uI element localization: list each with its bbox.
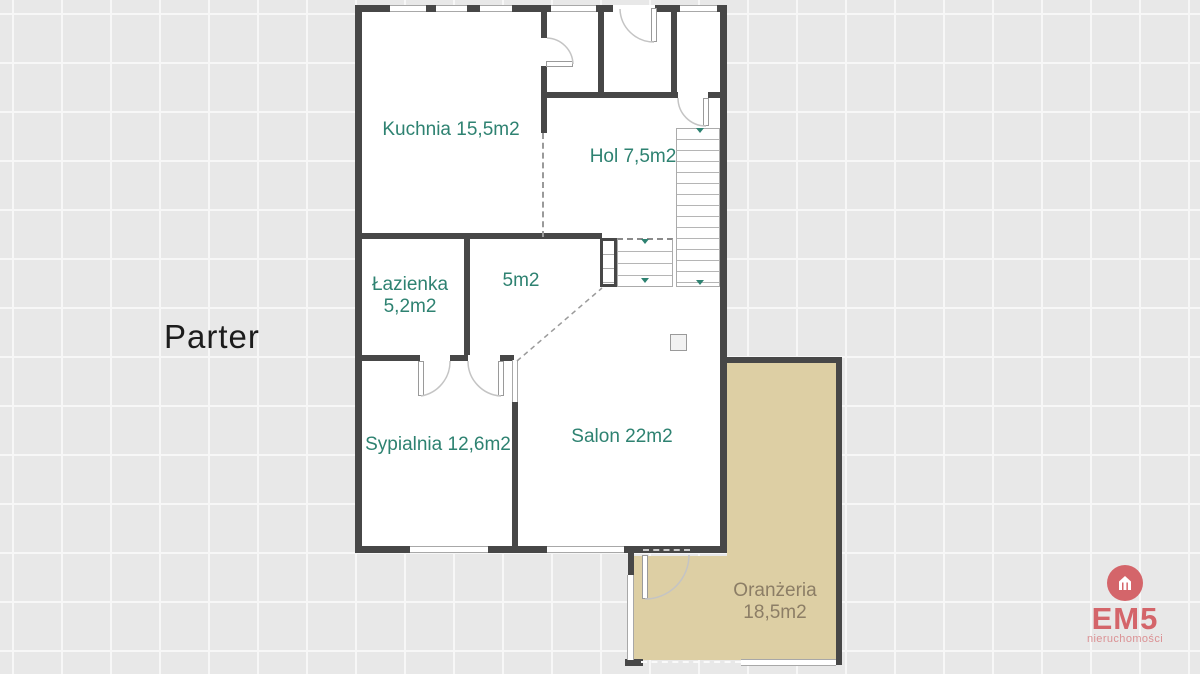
- window: [627, 575, 634, 660]
- room-label-oranzeria-name: Oranżeria: [733, 580, 816, 602]
- wall-segment: [623, 546, 643, 553]
- window: [741, 659, 836, 666]
- wall-segment: [464, 239, 470, 355]
- window: [480, 5, 512, 12]
- door-leaf: [642, 555, 648, 599]
- room-label-small-room: 5m2: [503, 270, 540, 292]
- window: [680, 5, 717, 12]
- room-label-salon: Salon 22m2: [571, 426, 672, 448]
- door-leaf: [546, 61, 573, 67]
- wall-segment: [671, 12, 677, 92]
- wall-segment: [598, 12, 604, 92]
- door-leaf: [651, 8, 657, 42]
- logo-subtitle-text: nieruchomości: [1087, 633, 1163, 645]
- wall-segment: [690, 546, 727, 553]
- door-opening: [420, 355, 450, 361]
- room-label-lazienka-area: 5,2m2: [372, 296, 448, 318]
- door-opening: [468, 355, 500, 361]
- room-label-sypialnia: Sypialnia 12,6m2: [365, 434, 511, 456]
- wall-segment: [708, 92, 720, 98]
- wall-segment: [541, 92, 681, 98]
- house-stripe: [1122, 583, 1124, 591]
- staircase-upper-run: [676, 128, 720, 287]
- logo-brand-text: EM5: [1092, 601, 1159, 637]
- house-shape: [1119, 576, 1131, 590]
- house-stripe: [1126, 583, 1128, 591]
- chimney-square: [670, 334, 687, 351]
- window: [547, 546, 624, 553]
- open-boundary-dashed: [641, 661, 741, 663]
- floor-plan-canvas: Kuchnia 15,5m2 Hol 7,5m2 Łazienka 5,2m2 …: [0, 0, 1200, 674]
- staircase-side-box: [600, 238, 617, 287]
- wall-segment: [362, 233, 602, 239]
- window: [410, 546, 488, 553]
- room-label-hol: Hol 7,5m2: [590, 146, 677, 168]
- wall-segment: [836, 357, 842, 665]
- wall-segment: [727, 357, 842, 363]
- window: [390, 5, 426, 12]
- door-leaf: [498, 361, 504, 396]
- room-label-oranzeria-area: 18,5m2: [733, 602, 816, 624]
- house-icon: [1115, 573, 1135, 593]
- window: [436, 5, 467, 12]
- window: [512, 360, 518, 402]
- wall-segment: [362, 355, 420, 361]
- door-leaf: [418, 361, 424, 396]
- room-label-lazienka-name: Łazienka: [372, 274, 448, 296]
- wall-segment: [541, 12, 547, 38]
- door-opening: [613, 5, 655, 12]
- logo-house-icon: [1107, 565, 1143, 601]
- door-leaf: [703, 98, 709, 126]
- wall-segment: [355, 5, 362, 553]
- staircase-lower-run: [617, 238, 673, 287]
- room-label-kuchnia: Kuchnia 15,5m2: [382, 119, 519, 141]
- wall-segment: [450, 355, 468, 361]
- room-label-lazienka: Łazienka 5,2m2: [372, 274, 448, 318]
- wall-segment: [512, 401, 518, 546]
- room-label-oranzeria: Oranżeria 18,5m2: [733, 580, 816, 624]
- wall-segment: [541, 66, 547, 133]
- open-boundary-dashed: [542, 133, 544, 237]
- wall-segment: [628, 553, 634, 575]
- window: [551, 5, 596, 12]
- wall-segment: [720, 5, 727, 553]
- open-boundary-dashed: [643, 549, 690, 551]
- floor-title: Parter: [164, 318, 260, 356]
